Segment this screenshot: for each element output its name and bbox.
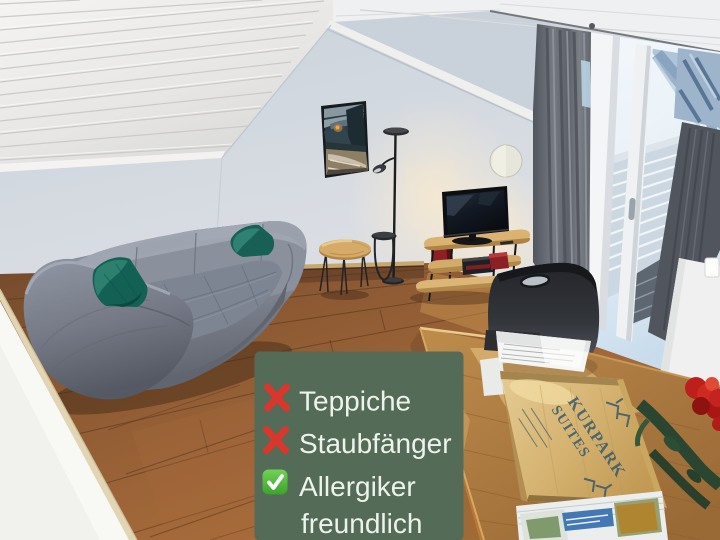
svg-text:Teppiche: Teppiche [299,386,411,417]
svg-text:Allergiker: Allergiker [299,471,416,502]
svg-text:freundlich: freundlich [301,508,422,539]
svg-text:Staubfänger: Staubfänger [299,428,452,459]
